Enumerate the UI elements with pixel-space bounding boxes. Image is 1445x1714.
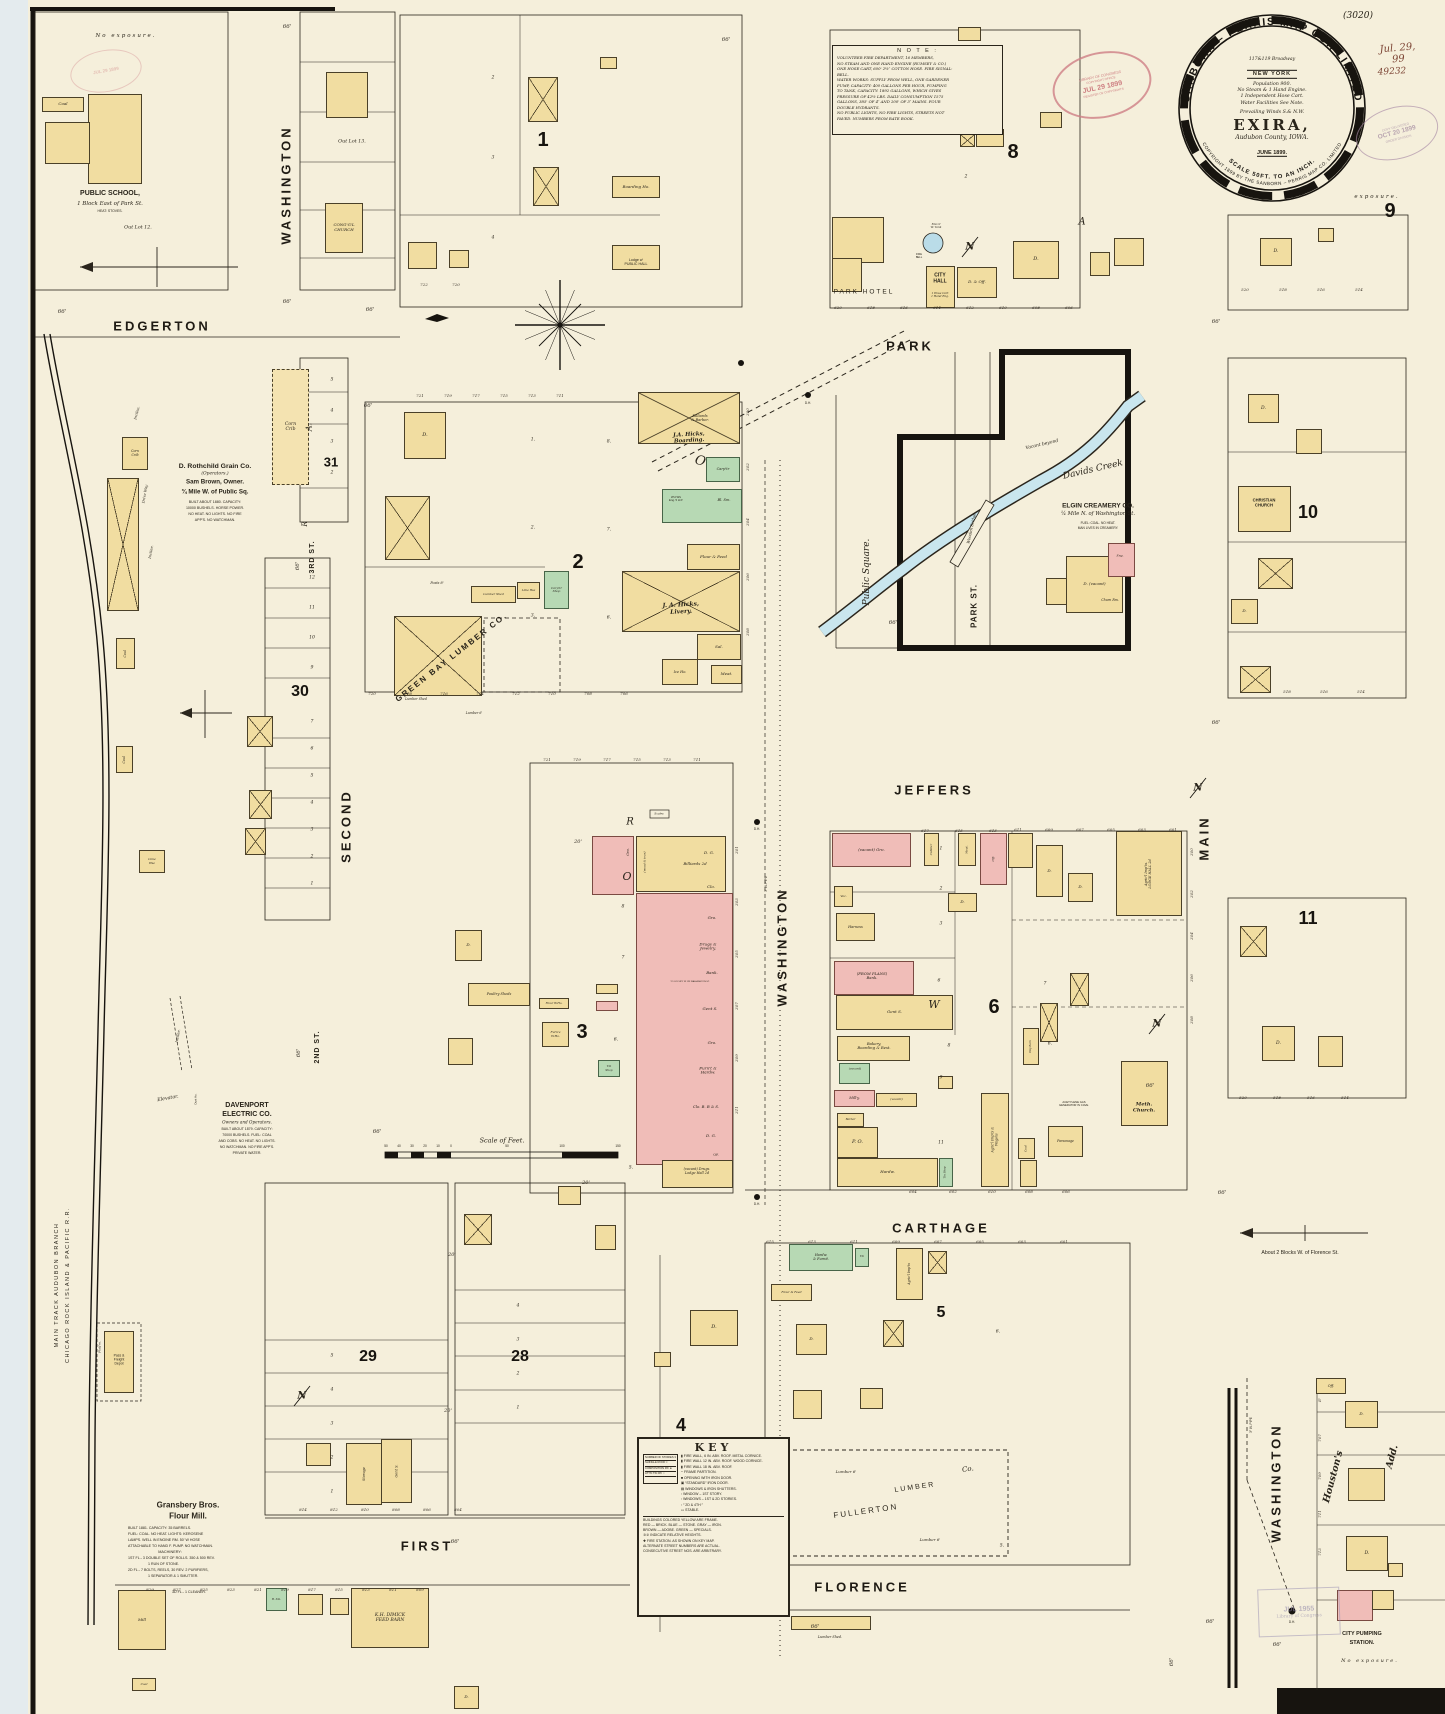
street-number: 716 [440,692,448,696]
scale-of-feet-label: Scale of Feet. [480,1137,525,1144]
block-31: 31 [324,456,338,471]
building: D. [454,1686,479,1709]
street-carthage: CARTHAGE [892,1222,990,1237]
map-label: 66' [811,1624,820,1630]
map-label: 66' [373,1129,382,1135]
map-label: N [1152,1018,1161,1029]
building-label: Tin Shop [945,1167,948,1179]
street-number: 809 [416,1588,424,1592]
lot-number: 4 [311,800,314,805]
creamery-engine [1108,543,1135,577]
map-label: Sam Brown, Owner. [186,480,244,487]
map-label: 100 [559,1145,564,1149]
building: Off. [980,833,1007,885]
street-number: 516 [1317,288,1325,292]
building-label: D. [1365,1551,1370,1556]
congregational-church: CONG'G'L CHURCH [325,203,363,253]
map-shape [180,708,192,718]
seal-town: EXIRA, [1206,116,1338,134]
map-label: Gro. [627,848,631,856]
map-label: Eng. [1117,554,1124,557]
legend-line: ATT'D TIN R'F ○ [645,1472,676,1477]
building-label: Carp'tr Shop [551,587,562,594]
building: Agric'l Imp'ts [896,1248,923,1300]
building: Coal [116,638,135,669]
elgin-creamery-label: ELGIN CREAMERY CO. [1062,502,1134,509]
map-label: 66' [889,620,898,626]
block-6: 6 [988,996,999,1018]
street-number: 303 [735,898,739,906]
street-edgerton: EDGERTON [113,320,210,335]
street-number: 714 [476,692,484,696]
map-label: ¼ Mile N. of Washington St. [1061,512,1135,518]
building: Ice Ho. [662,659,698,685]
street-number: 815 [335,1588,343,1592]
building-label: Meat. [721,672,733,677]
post-office-label: P. O. [852,1140,863,1146]
block-1: 1 [537,129,548,151]
map-label: 7 [1044,981,1047,986]
map-label: Clo. B. B & S. [693,1105,719,1109]
building: Tin Shop [939,1158,953,1187]
map-label: 66' [364,403,373,409]
building-label: Harness [848,925,863,929]
building-label: D. [711,1325,716,1331]
map-label: (vacant) [849,1067,861,1070]
sanborn-map-sheet-exira-1899: N O T E : VOLUNTEER FIRE DEPARTMENT, 16 … [0,0,1445,1714]
building-label: (vacant) Gro. [858,848,885,853]
map-label: Furn't & Hardw. [699,1067,716,1076]
street-jeffers: JEFFERS [894,784,974,799]
building [449,250,469,268]
map-label: No exposure. [1341,1659,1399,1665]
street-number: E' [1318,1398,1322,1402]
building: Flour W.Ho. [539,998,569,1009]
block-10: 10 [1298,502,1318,522]
building-label: Lime Hse [522,589,535,592]
lot-number: 5 [331,1353,334,1358]
dimick-feed-barn-label: K.H. DIMICK FEED BARN [375,1613,405,1623]
map-label: (vacant) Drugs. Lodge Hall 2d [684,1168,711,1176]
davenport-electric-label: DAVENPORT [225,1102,268,1110]
building: Hardw. & Furnit. [789,1244,853,1271]
street-number: 608 [1025,1190,1033,1194]
building [533,167,559,206]
map-label: 10000 BUSHELS. HORSE POWER. [186,506,244,510]
map-label: 5. [1000,1543,1004,1548]
block-28: 28 [511,1348,529,1366]
map-key-legend: KEY NUMBER OF STORIES 3SHINGLE ROOF ×COM… [637,1437,790,1617]
street-number: 717 [472,394,480,398]
public-school [88,94,142,184]
map-label: Out Lot 13. [338,139,366,144]
block-11: 11 [1298,908,1317,928]
rothchild-grain-label: D. Rothchild Grain Co. [179,463,252,471]
map-label: D.H. [754,828,760,832]
building [249,790,272,819]
street-number: 713 [528,394,536,398]
building: Storage [346,1443,382,1505]
building-label: Meat. [965,845,968,853]
street-number: 713 [663,758,671,762]
map-label: (wood & iron) [643,851,646,872]
map-shape [437,1152,451,1158]
building [883,1320,904,1347]
map-shape [80,262,93,272]
map-label: Owners and Operators. [222,1121,272,1126]
map-label: N [297,1390,306,1401]
map-label: R [626,816,634,827]
street-number: 827 [173,1588,181,1592]
building: D. [455,930,482,961]
map-label: A. [306,423,315,431]
building: Corn Crib [122,437,148,470]
building-label: Ice Ho. [674,670,687,674]
map-label: ¾ Mile W. of Public Sq. [181,490,248,497]
building-label: D. [1274,249,1279,254]
block-2: 2 [572,551,583,573]
building [596,1001,618,1011]
building-label: Tin [860,1256,864,1259]
scan-edge [0,0,28,1714]
public-square-label: Public Square. [862,539,872,606]
building [654,1352,671,1367]
seal-new-york: NEW YORK [1247,69,1297,78]
map-label: 66' [451,1539,460,1545]
building-label: D. [1276,1041,1281,1046]
street-second: SECOND [340,789,355,863]
map-label: PRIVATE WATER. [233,1152,262,1156]
building-label: Poultry Sheds [487,992,512,996]
map-label: 20' [582,1181,590,1187]
seal-county: Audubon County, IOWA. [1206,134,1338,141]
street-number: 608 [1032,306,1040,310]
building: D. [1346,1536,1388,1571]
building: Lumber Shed [471,586,516,603]
street-number: 709 [1318,1472,1322,1480]
map-label: Dust Ho. [194,1094,197,1105]
street-number: 516 [1320,690,1328,694]
stamp-library-1955: JUL 1955 Library of Congress [1257,1587,1341,1638]
lot-number: 3 [311,827,314,832]
street-2nd: 2ND ST. [314,1030,322,1063]
street-number: 810 [361,1508,369,1512]
street-number: 817 [308,1588,316,1592]
lot-number: 11 [309,605,315,610]
building-label: D. [960,900,964,905]
street-number: 825 [200,1588,208,1592]
no-exposure-note: No exposure. [95,33,156,39]
building: Off. [1316,1378,1346,1394]
lot-number: 2 [331,1455,334,1460]
building-label: Off. [1328,1384,1334,1388]
building: Agric'l Imp'ts & Wagons [981,1093,1009,1187]
building [793,1390,822,1419]
building: Gent S. [381,1439,412,1503]
building [860,1388,883,1409]
building-label: Flour W.Ho. [546,1002,563,1005]
street-number: 300 [746,408,750,416]
map-label: 3 [492,155,495,160]
map-label: 66' [283,299,292,305]
map-label: Lumber 6' [466,712,483,716]
map-label: 9 [940,1075,943,1080]
building-label: D. [1261,406,1266,411]
corn-crib: Corn Crib [272,369,309,485]
map-label: 3 [940,921,943,926]
street-number: 806 [423,1508,431,1512]
building-label: Agric'l Imp'ts & Wagons [991,1127,998,1153]
street-number: 615 [955,829,963,833]
map-label: NO WATCHMAN. NO FIRE APP'S. [220,1146,274,1150]
gransbery-mill-label: Gransbery Bros. [157,1502,220,1511]
lot-number: 2 [311,854,314,859]
street-number: 804 [454,1508,462,1512]
street-number: 304 [1190,932,1194,940]
street-number: 607 [1076,828,1084,832]
legend-line: ▭ STABLE. [681,1508,784,1513]
map-label: 20' [448,1253,456,1259]
street-number: 603 [1138,828,1146,832]
building [832,258,862,292]
hicks-livery-label: J. A. Hicks, Livery. [662,601,699,616]
street-number: 617 [921,829,929,833]
map-shape [1240,1228,1253,1238]
map-label: Bank. [706,971,718,975]
map-label: R [302,521,310,526]
creamery-dwelling-label: D. (vacant) [1083,582,1105,587]
street-number: 618 [867,306,875,310]
building-label: Flour & Feed [781,1291,801,1294]
map-label: ATTACHABLE TO HAND F. PUMP. NO WATCHMAN. [128,1544,213,1548]
dimick-feed-barn: K.H. DIMICK FEED BARN [351,1588,429,1648]
map-label: 1ST FL.- 3 DOUBLE SET OF ROLLS. 350 & 50… [128,1556,215,1560]
city-pumping-station [1337,1590,1373,1621]
lot-number: 4 [517,1303,520,1308]
lot-number: 4 [331,1387,334,1392]
building [1040,112,1062,128]
building-label: Flour & Feed [700,555,727,560]
note-lines: VOLUNTEER FIRE DEPARTMENT, 16 MEMBERS,NO… [837,55,998,121]
street-number: 720 [368,692,376,696]
street-number: 306 [1190,974,1194,982]
building-label: D. [809,1337,813,1342]
building: Hay Barn [1023,1028,1039,1065]
lot-number: 3 [331,1421,334,1426]
map-label: 0 [450,1145,452,1149]
building [596,984,618,994]
map-label: Posts 8' [430,582,443,586]
corn-crib-label: Corn Crib [285,422,296,432]
street-number: 602 [949,1190,957,1194]
street-number: 613 [808,1240,816,1244]
street-number: 615 [766,1240,774,1244]
street-number: 720 [452,283,460,287]
street-number: 715 [500,394,508,398]
map-label: Platf'm. [98,1341,101,1353]
coal-shed: Coal [42,97,84,112]
building-label: D. [1047,869,1051,874]
building [1114,238,1144,266]
building: Tin [855,1248,869,1267]
building: D. [1262,1026,1295,1061]
map-label: 6. [996,1329,1000,1334]
street-number: 607 [934,1240,942,1244]
building-label: Lumber Shed [483,593,504,596]
lot-number: 1 [517,1405,520,1410]
building: Poultry Sheds [468,983,530,1006]
street-number: 601 [1060,1240,1068,1244]
building: D. [1036,845,1063,897]
map-label: (FROM PLANS) Bank. [857,972,887,981]
public-school-label: PUBLIC SCHOOL, [80,190,140,198]
map-label: 66' [722,37,731,43]
green-bay-lumber [394,616,482,696]
building: D. [1231,599,1258,624]
street-number: 605 [1107,828,1115,832]
building-label: Gent S. [887,1010,902,1015]
block-30: 30 [291,683,309,701]
map-label: Drugs & Jewelry. [699,943,716,952]
map-label: O [622,871,631,883]
building-label: D. [1078,885,1082,890]
building: D. [1345,1401,1378,1428]
building: Harness [836,913,875,941]
building: Cobbler [924,833,939,866]
street-number: 721 [543,758,551,762]
map-label: FUEL: COAL. NO HEAT. LIGHTS: KEROSENE [128,1532,203,1536]
map-label: 8. [607,439,611,444]
map-label: TO OCCUPY W 123 WASHINGTON ST. [670,981,709,983]
building [528,77,558,122]
street-number: 715 [633,758,641,762]
street-number: 719 [444,394,452,398]
building: D. [796,1324,827,1355]
map-label: 150 [615,1145,620,1149]
map-label: HEAT: STOVES. [98,210,123,214]
map-label: 1. [531,437,535,442]
hydrant-dot [805,392,811,398]
street-number: 613 [989,829,997,833]
sanborn-perris-seal: SANBORN – PERRIS MAP CO., LIMITED COPYRI… [1175,11,1369,205]
map-label: 66' [296,1049,302,1058]
building [928,1251,947,1274]
building: D. [1013,241,1059,279]
map-label: 4 [492,235,495,240]
map-label: Lumber 6' [920,1538,941,1542]
street-main: MAIN [1198,815,1213,860]
map-label: 1 [940,846,943,851]
building: D. [690,1310,738,1346]
building: (vacant) Gro. [832,833,911,867]
street-number: 614 [933,306,941,310]
map-label: 7. [607,527,611,532]
building [1240,666,1271,693]
map-label: AND COBS. NO HEAT. NO LIGHTS. [219,1140,276,1144]
map-label: NO HEAT. NO LIGHTS. NO FIRE [188,512,241,516]
lot-number: 1 [311,881,314,886]
key-color-notes: BUILDINGS COLORED YELLOW ARE FRAME.RED —… [643,1516,784,1555]
building: Parsonage [1048,1126,1083,1157]
building [1318,1036,1343,1067]
map-label: 1 SEPARATOR & 1 SMUTTER. [148,1574,198,1578]
railroad-label: MAIN TRACK AUDUBON BRANCH [54,1223,60,1348]
map-label: 66' [1169,1658,1175,1667]
map-label: W [928,999,939,1011]
map-label: D. G. [706,1134,716,1138]
building: Lime Hse [517,582,540,599]
lot-number: 12 [309,575,315,580]
building: Coal [132,1678,156,1691]
handwritten-number: 49232 [1377,66,1406,78]
map-label: 66' [1273,1642,1282,1648]
map-label: Out Lot 12. [124,225,152,230]
map-label: W'd W'k Eng. 5 H.P. [669,496,683,502]
street-number: 305 [735,950,739,958]
map-label: Bl. Sm. [717,498,730,502]
street-number: 601 [1169,828,1177,832]
street-number: 604 [909,1190,917,1194]
map-shape [557,322,562,327]
building [595,1225,616,1250]
key-wall-symbols: ▮ FIRE WALL, 6 IN. ABV. ROOF. METAL CORN… [681,1454,784,1514]
map-label: D.H. [754,1203,760,1207]
street-number: 718 [404,692,412,696]
railroad-track [44,334,103,1625]
street-number: 606 [1062,1190,1070,1194]
building [1040,1003,1058,1042]
block-9: 9 [1384,200,1395,222]
building-label: Corn Crib [131,450,139,457]
street-number: 819 [281,1588,289,1592]
building [1090,252,1110,276]
street-washington-se: WASHINGTON [1270,1423,1285,1542]
map-label: 66' [366,307,375,313]
building-label: Tin Shop [605,1065,612,1071]
map-label: 66' [1146,1083,1155,1089]
building: Sal. [697,634,741,660]
map-label: 6. [1048,1041,1052,1046]
street-number: 710 [548,692,556,696]
building: Carp'tr [706,457,740,482]
building-label: Cobbler [930,844,933,855]
street-number: 711 [1318,1510,1322,1518]
map-shape [562,1152,618,1158]
map-label: 50 [384,1145,388,1149]
street-number: 520 [1241,288,1249,292]
building [448,1038,473,1065]
building: Vac. [834,886,853,907]
map-label: Lumber Shed. [818,1636,842,1640]
methodist-church-label: Meth. Church. [1133,1102,1155,1113]
christian-church [1238,486,1291,532]
map-label: 7 [622,955,625,960]
building-label: (vacant) [890,1098,902,1101]
map-label: 70000 BUSHELS. FUEL: COAL [222,1134,271,1138]
map-label: 1 Hose Cart 1 Hand Eng. [931,292,949,298]
flour-mill: Mill [118,1590,166,1650]
street-number: 721 [416,394,424,398]
building-label: Hardw. [880,1170,895,1175]
building: Meat. [711,665,742,684]
building [958,27,981,41]
building-label: Furn'e W.Ho. [551,1031,561,1038]
street-park-st: PARK ST. [971,584,980,628]
hydrant-dot [738,360,744,366]
lot-number: 4 [331,408,334,413]
map-label: 1 RUN OF STONE. [148,1562,179,1566]
hydrant-dot [754,819,760,825]
